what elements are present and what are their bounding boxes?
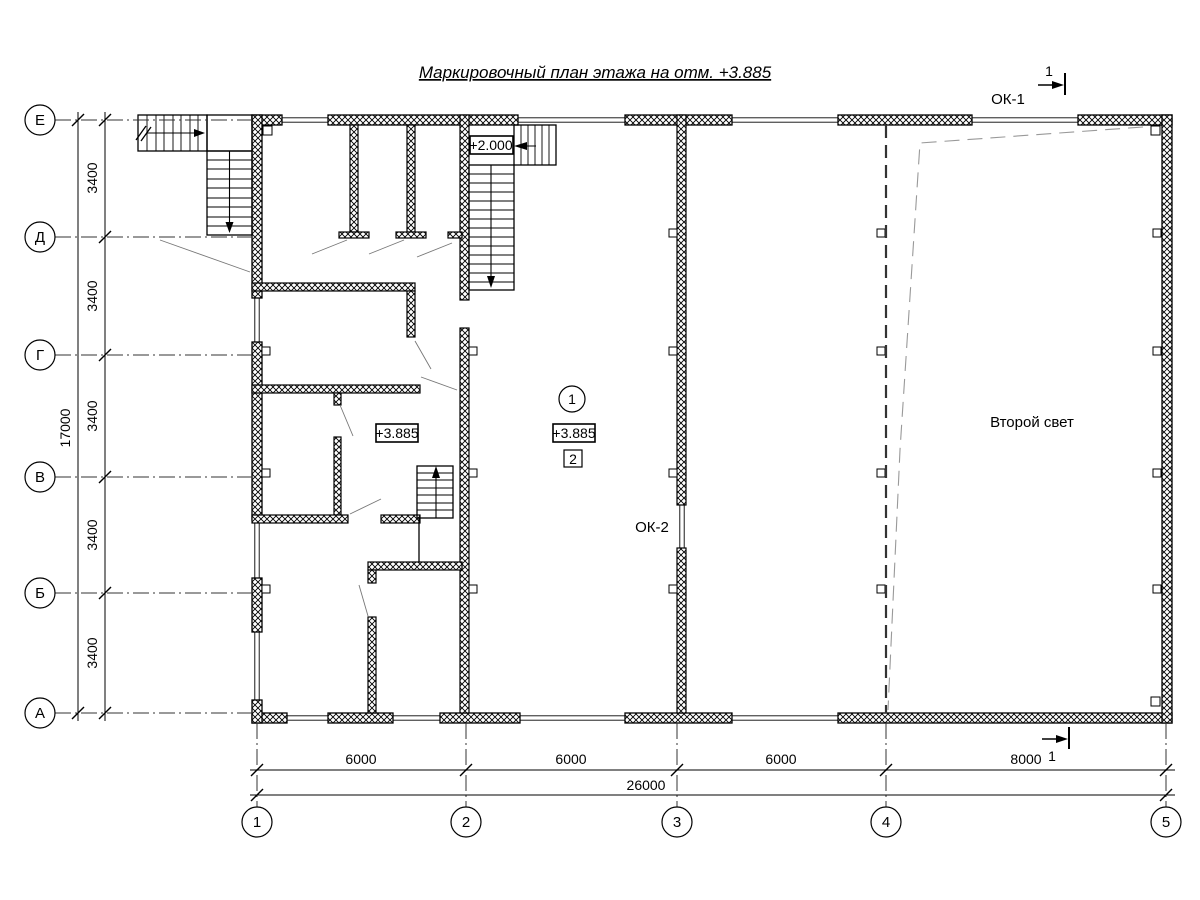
partition <box>252 385 420 393</box>
window <box>393 716 440 720</box>
drawing-title: Маркировочный план этажа на отм. +3.885 <box>419 63 772 82</box>
stair-arrow-down <box>226 222 234 233</box>
wall-column3 <box>677 115 686 505</box>
partition-cap <box>339 232 369 238</box>
wall-segment <box>252 342 262 520</box>
wall-stairwell <box>460 115 469 300</box>
room-number-value: 1 <box>568 391 576 407</box>
dim-row-spacing: 3400 <box>84 637 100 668</box>
window <box>520 716 625 720</box>
section-number: 1 <box>1045 63 1053 79</box>
axis-label-col: 5 <box>1162 814 1170 831</box>
elevation-value: +2.000 <box>469 137 512 153</box>
window <box>732 118 838 122</box>
partition <box>407 125 415 232</box>
section-arrow-icon <box>1056 735 1068 743</box>
entrance-stair <box>136 115 252 235</box>
window-ok1 <box>972 118 1078 122</box>
partition <box>368 617 376 713</box>
wall-segment <box>1162 115 1172 723</box>
elevation-value: +3.885 <box>375 425 418 441</box>
door-leaf <box>359 585 368 616</box>
wall-segment <box>838 115 972 125</box>
section-number: 1 <box>1048 748 1056 764</box>
axis-label-row: В <box>35 469 45 486</box>
wall-segment <box>1078 115 1172 125</box>
door-leaf <box>415 341 431 369</box>
door-leaf <box>340 405 353 436</box>
door-leaf <box>417 243 452 257</box>
section-arrow-icon <box>1052 81 1064 89</box>
door-leaf <box>160 240 250 272</box>
window <box>732 716 838 720</box>
elevation-floor-left-box: +3.885 <box>375 424 418 442</box>
section-mark-bottom: 1 <box>1042 727 1069 764</box>
partition <box>407 291 415 337</box>
partition <box>252 515 348 523</box>
axis-label-col: 3 <box>673 814 681 831</box>
door-leaf <box>421 377 457 390</box>
dim-col-spacing: 6000 <box>765 751 796 767</box>
dim-col-spacing: 6000 <box>555 751 586 767</box>
double-height-label: Второй свет <box>990 414 1074 431</box>
window <box>287 716 328 720</box>
elevation-landing-box: +2.000 <box>469 136 513 154</box>
wall-segment <box>625 713 732 723</box>
window <box>255 298 259 342</box>
partition-cap <box>448 232 462 238</box>
partition <box>334 437 341 515</box>
elevation-floor-center-box: +3.885 <box>552 424 595 442</box>
axis-label-col: 1 <box>253 814 261 831</box>
dim-row-total: 17000 <box>57 408 73 447</box>
partition <box>252 283 415 291</box>
wall-segment <box>838 713 1172 723</box>
door-leaf <box>369 240 404 254</box>
node-marker-box: 2 <box>564 450 582 467</box>
axis-label-row: Д <box>35 229 45 246</box>
axis-label-col: 4 <box>882 814 890 831</box>
col-axes: 6000 6000 6000 8000 26000 1 2 3 4 5 <box>242 723 1181 837</box>
section-mark-top: 1 <box>1038 63 1065 95</box>
dim-row-spacing: 3400 <box>84 400 100 431</box>
door-leaf <box>312 240 347 254</box>
wall-segment <box>328 115 518 125</box>
axis-label-col: 2 <box>462 814 470 831</box>
axis-label-row: Е <box>35 112 45 129</box>
wall-segment <box>440 713 520 723</box>
wall-segment <box>252 578 262 632</box>
stair-arrow-left <box>514 142 527 150</box>
elevation-value: +3.885 <box>552 425 595 441</box>
dim-col-spacing: 6000 <box>345 751 376 767</box>
plan-labels: ОК-1 ОК-2 Второй свет +2.000 +3.885 +3.8… <box>375 91 1074 536</box>
left-dimensions: 3400 3400 3400 3400 3400 17000 <box>57 112 111 721</box>
door-leaf <box>350 499 381 514</box>
partition-stub <box>334 393 341 405</box>
stair-arrow-right <box>194 129 205 137</box>
partition-stub <box>368 570 376 583</box>
window <box>255 520 259 578</box>
wall-column2 <box>460 328 469 713</box>
stairs <box>136 115 556 562</box>
interior-stair <box>417 466 453 562</box>
axis-label-row: Г <box>36 347 44 364</box>
wall-segment <box>328 713 393 723</box>
partition <box>368 562 462 570</box>
dim-col-spacing: 8000 <box>1010 751 1041 767</box>
window-type-label-ok1: ОК-1 <box>991 91 1025 108</box>
dim-row-spacing: 3400 <box>84 519 100 550</box>
node-marker-value: 2 <box>569 451 577 467</box>
window <box>255 632 259 700</box>
window <box>518 118 625 122</box>
wall-segment <box>252 700 262 723</box>
wall-segment <box>252 115 262 298</box>
floor-plan-drawing: Маркировочный план этажа на отм. +3.885 <box>0 0 1200 900</box>
axis-label-row: Б <box>35 585 45 602</box>
wall-column3 <box>677 548 686 713</box>
dim-col-total: 26000 <box>627 777 666 793</box>
window <box>282 118 328 122</box>
windows <box>255 118 1078 720</box>
room-number-circle: 1 <box>559 386 585 412</box>
partition-cap <box>396 232 426 238</box>
window-type-label-ok2: ОК-2 <box>635 519 669 536</box>
dim-row-spacing: 3400 <box>84 162 100 193</box>
partition <box>381 515 420 523</box>
dim-row-spacing: 3400 <box>84 280 100 311</box>
axis-label-row: А <box>35 705 45 722</box>
stair-arrow-up <box>432 466 440 478</box>
partition <box>350 125 358 232</box>
window-ok2 <box>680 505 684 548</box>
